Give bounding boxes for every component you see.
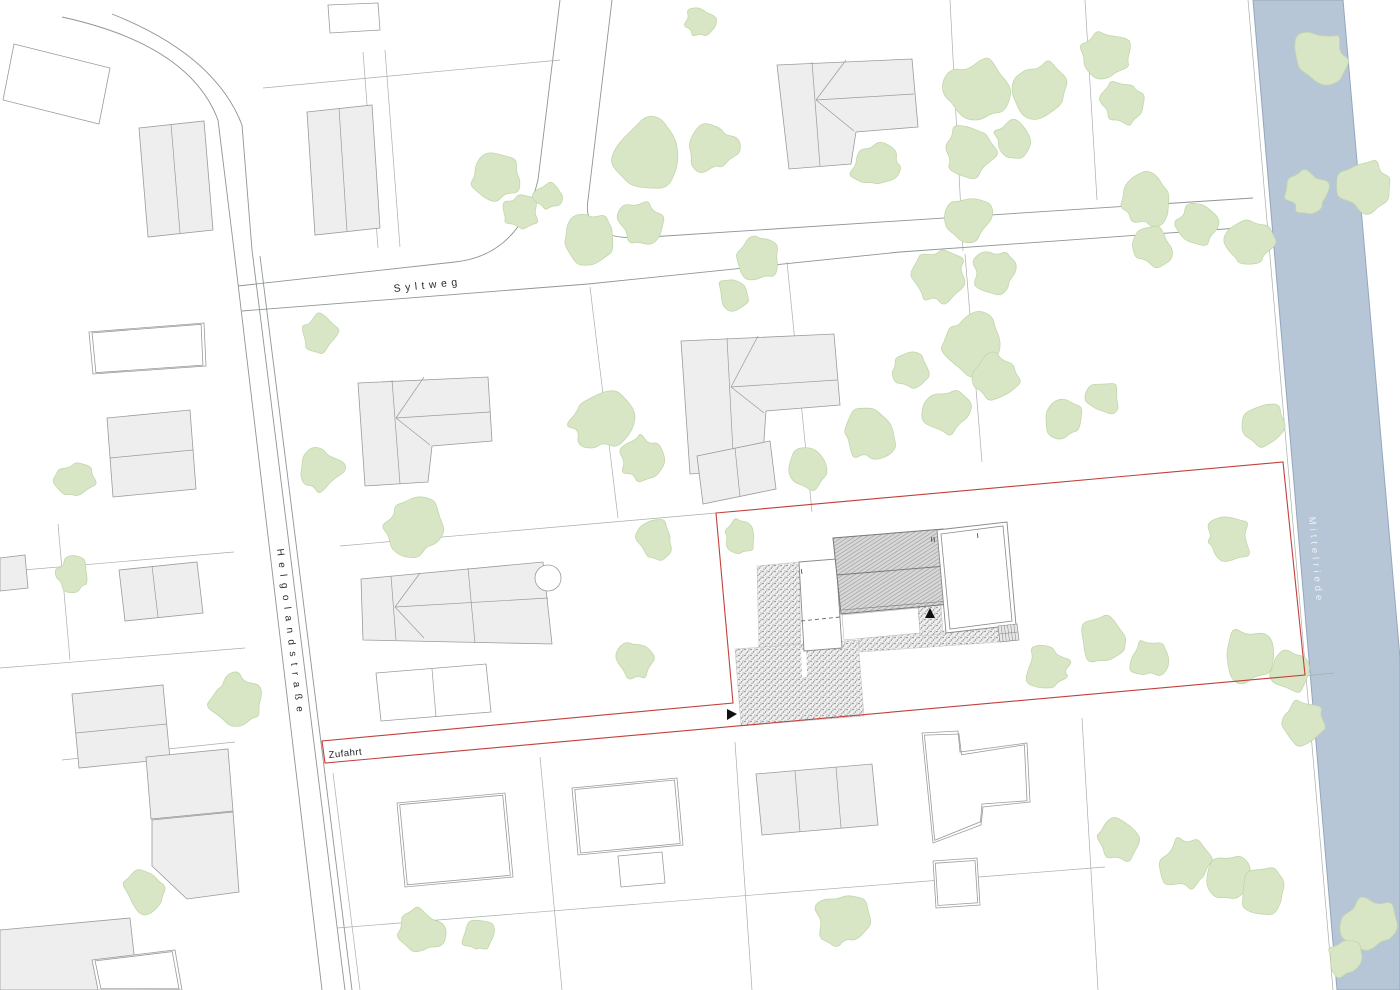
tree [1227,629,1274,683]
existing-building [376,664,491,721]
tree [1159,838,1212,889]
tree [1080,32,1130,79]
tree [845,408,896,459]
street-label-syltweg: Syltweg [393,276,462,295]
tree [462,920,494,949]
entrance-arrow-marker [727,709,737,720]
building-footprint [72,685,170,768]
parcel-line [333,773,360,990]
existing-building [3,44,110,124]
tree [736,236,777,280]
building-footprint [397,793,513,887]
tree [690,124,741,173]
tree [973,252,1016,295]
site-plan-map: Syltweg Helgolandstraße Mittelriede Zufa… [0,0,1400,990]
tree [565,214,613,265]
tree [1097,817,1139,861]
building-footprint [307,105,380,235]
tree [616,643,655,679]
tree [1208,517,1249,562]
existing-building [358,377,492,486]
street-edge-line [260,256,352,990]
building-footprint [146,749,233,819]
tree [533,182,563,209]
paving-area [735,640,864,726]
tree [789,448,827,491]
tree [685,8,717,36]
tree [994,119,1031,158]
tree [1082,615,1126,662]
parcel-line [735,742,752,990]
existing-building [146,749,233,819]
tree [398,907,447,951]
street-label-helgolandstrasse: Helgolandstraße [274,548,306,719]
tree [1026,645,1070,688]
existing-building [618,852,665,887]
tree [942,58,1010,120]
tree [383,497,444,558]
tree [1012,61,1067,119]
tree [123,870,165,915]
existing-building [152,812,239,899]
tree [911,250,965,304]
building-footprint [756,764,878,835]
tree [1224,220,1276,264]
tree [503,195,538,229]
existing-building [361,562,561,644]
tree [945,199,993,243]
tree [719,280,748,311]
existing-building [777,59,918,169]
tree [850,142,900,183]
building-bay [535,565,561,591]
tree [725,519,754,554]
parcel-line [540,757,562,990]
building-footprint [328,3,380,33]
existing-building [933,858,980,908]
tree [1130,641,1169,676]
existing-building [397,793,513,887]
existing-building [922,731,1030,843]
building-footprint [3,44,110,124]
tree [946,126,998,179]
tree [1175,203,1219,245]
tree [1121,171,1169,226]
existing-building [328,3,380,33]
building-footprint [572,778,683,855]
tree [207,672,261,727]
existing-building [72,685,170,768]
building-footprint [933,858,980,908]
access-label-zufahrt: Zufahrt [328,747,363,761]
building-footprint [152,812,239,899]
parcel-line [0,552,234,572]
existing-building [572,778,683,855]
tree [1242,868,1284,915]
tree [892,352,929,388]
existing-building [0,555,28,591]
tree [1046,399,1082,439]
building-footprint [922,731,1030,843]
existing-building [107,410,196,497]
water-channel [1253,0,1400,990]
tree [620,434,665,481]
tree [301,447,346,492]
parcel-line [0,648,245,668]
parcel-line [385,50,400,247]
paving-gap [801,650,807,677]
building-footprint [361,562,552,644]
building-footprint [0,555,28,591]
water-layer [1253,0,1400,990]
street-edge-line [238,0,560,286]
storey-label-main-block: II [931,537,936,544]
site-plan-page: Syltweg Helgolandstraße Mittelriede Zufa… [0,0,1400,990]
building-footprint [119,562,203,621]
tree [815,896,871,947]
entrance-steps [998,624,1019,642]
tree [635,519,671,560]
parcel-line [263,60,560,88]
tree [471,153,520,201]
tree [567,391,634,448]
building-footprint [618,852,665,887]
tree [1242,404,1285,447]
parcel-line [1082,718,1098,990]
existing-building [756,764,878,835]
tree [1100,82,1145,126]
tree [922,390,972,434]
building-footprint [777,59,918,169]
tree [302,313,338,354]
building-footprint [139,121,213,237]
building-footprint [376,664,491,721]
parcel-line [1085,0,1097,200]
left-wing [799,559,842,651]
existing-building [139,121,213,237]
tree [1085,383,1118,413]
tree [53,463,96,496]
existing-building [119,562,203,621]
tree [612,116,678,188]
tree [1132,226,1172,268]
building-footprint [107,410,196,497]
proposed-building-layer [727,522,1019,726]
existing-building [89,323,206,374]
tree [55,556,87,593]
paving-area [757,562,801,653]
building-footprint [358,377,492,486]
existing-building [307,105,380,235]
